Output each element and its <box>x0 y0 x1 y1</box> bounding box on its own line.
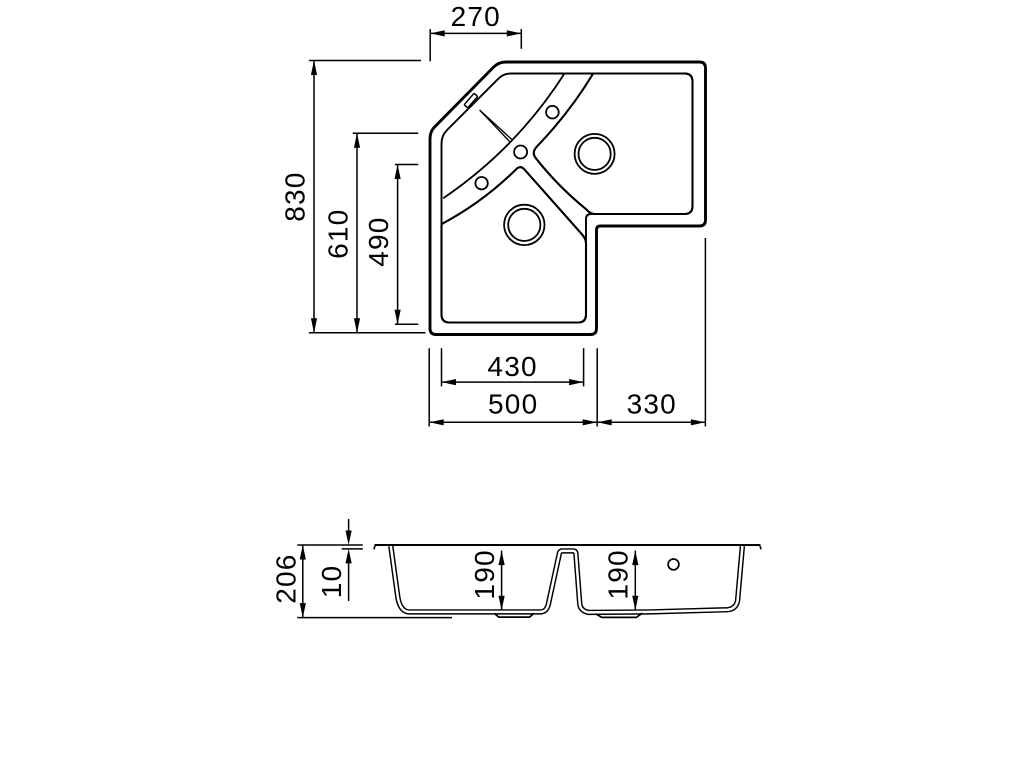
svg-text:500: 500 <box>488 389 538 420</box>
svg-text:490: 490 <box>363 216 394 266</box>
svg-text:610: 610 <box>322 209 353 259</box>
svg-text:10: 10 <box>316 565 347 599</box>
svg-text:330: 330 <box>627 389 677 420</box>
svg-text:190: 190 <box>603 549 634 599</box>
svg-text:190: 190 <box>469 549 500 599</box>
svg-text:270: 270 <box>451 1 501 32</box>
svg-text:430: 430 <box>487 351 537 382</box>
svg-text:830: 830 <box>279 171 310 221</box>
svg-text:206: 206 <box>270 553 301 603</box>
